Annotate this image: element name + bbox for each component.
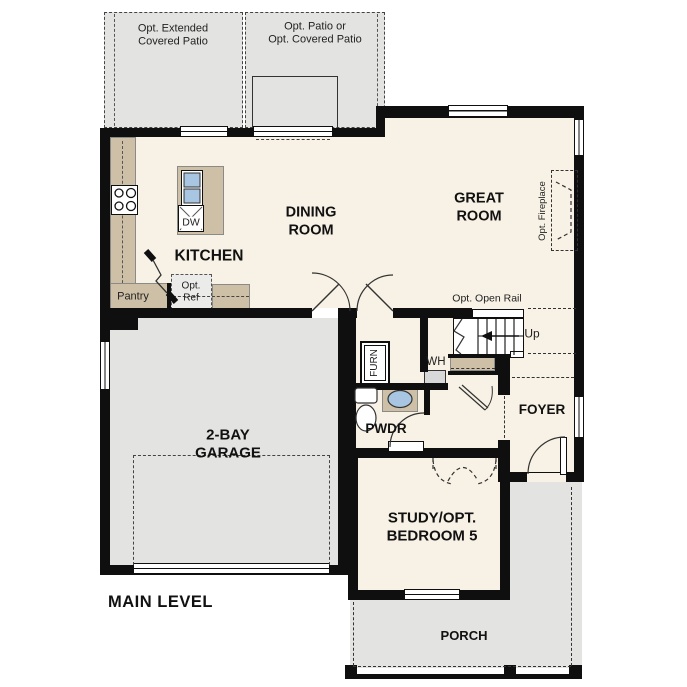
great-room-label: GREAT ROOM — [454, 190, 504, 225]
powder-label: PWDR — [365, 421, 406, 437]
garage-label-line1: 2-BAY — [195, 427, 261, 445]
opt-ref-label: Opt. Ref — [182, 281, 201, 304]
opt-fireplace-firebox — [556, 182, 571, 240]
opt-fireplace-label: Opt. Fireplace — [537, 181, 549, 241]
door-leaf-closet-b — [462, 385, 488, 408]
foyer-label: FOYER — [519, 402, 566, 418]
door-leaf-garage-entry — [312, 284, 339, 311]
door-swing-front — [528, 437, 565, 474]
door-leaf-closet-a — [459, 387, 485, 410]
powder-sink-basin — [388, 391, 412, 408]
main-level-title: MAIN LEVEL — [108, 592, 213, 612]
kitchen-sink-basin-top — [184, 173, 200, 187]
patio-left-label-line1: Opt. Extended — [138, 23, 208, 36]
opt-ref-label-line1: Opt. — [182, 281, 201, 293]
door-leaf-hall — [366, 284, 393, 311]
door-leaf-pantry — [153, 260, 167, 293]
opt-open-rail-label: Opt. Open Rail — [452, 293, 521, 306]
patio-left-label: Opt. Extended Covered Patio — [138, 23, 208, 50]
kitchen-label: KITCHEN — [175, 248, 244, 267]
patio-right-label-line1: Opt. Patio or — [268, 21, 362, 34]
study-label-line1: STUDY/OPT. — [387, 510, 478, 528]
floor-plan-canvas: Opt. Extended Covered Patio Opt. Patio o… — [0, 0, 687, 687]
kitchen-sink-basin-bottom — [184, 189, 200, 203]
toilet-tank — [355, 388, 377, 403]
door-swings-overlay — [0, 0, 687, 687]
study-label: STUDY/OPT. BEDROOM 5 — [387, 510, 478, 547]
dishwasher-label: DW — [181, 217, 201, 230]
opt-study-doors — [433, 458, 496, 484]
great-room-label-line1: GREAT — [454, 190, 504, 208]
garage-label-line2: GARAGE — [195, 445, 261, 463]
great-room-label-line2: ROOM — [454, 208, 504, 226]
furnace-label: FURN — [369, 349, 381, 377]
dining-room-label-line1: DINING — [286, 204, 337, 222]
dining-room-label: DINING ROOM — [286, 204, 337, 239]
cooktop-burners — [115, 189, 136, 211]
opt-ref-label-line2: Ref — [182, 292, 201, 304]
pantry-label: Pantry — [117, 290, 149, 303]
stair-break-line — [454, 319, 464, 354]
dining-room-label-line2: ROOM — [286, 222, 337, 240]
wall-stub-pantry-top — [146, 251, 154, 260]
patio-right-label: Opt. Patio or Opt. Covered Patio — [268, 21, 362, 48]
study-label-line2: BEDROOM 5 — [387, 528, 478, 546]
stairs-up-label: Up — [524, 327, 539, 342]
patio-left-label-line2: Covered Patio — [138, 36, 208, 49]
water-heater-label: WH — [426, 355, 445, 369]
garage-label: 2-BAY GARAGE — [195, 427, 261, 464]
patio-right-label-line2: Opt. Covered Patio — [268, 34, 362, 47]
wall-stub-pantry-bottom — [168, 293, 176, 302]
porch-label: PORCH — [441, 628, 488, 644]
